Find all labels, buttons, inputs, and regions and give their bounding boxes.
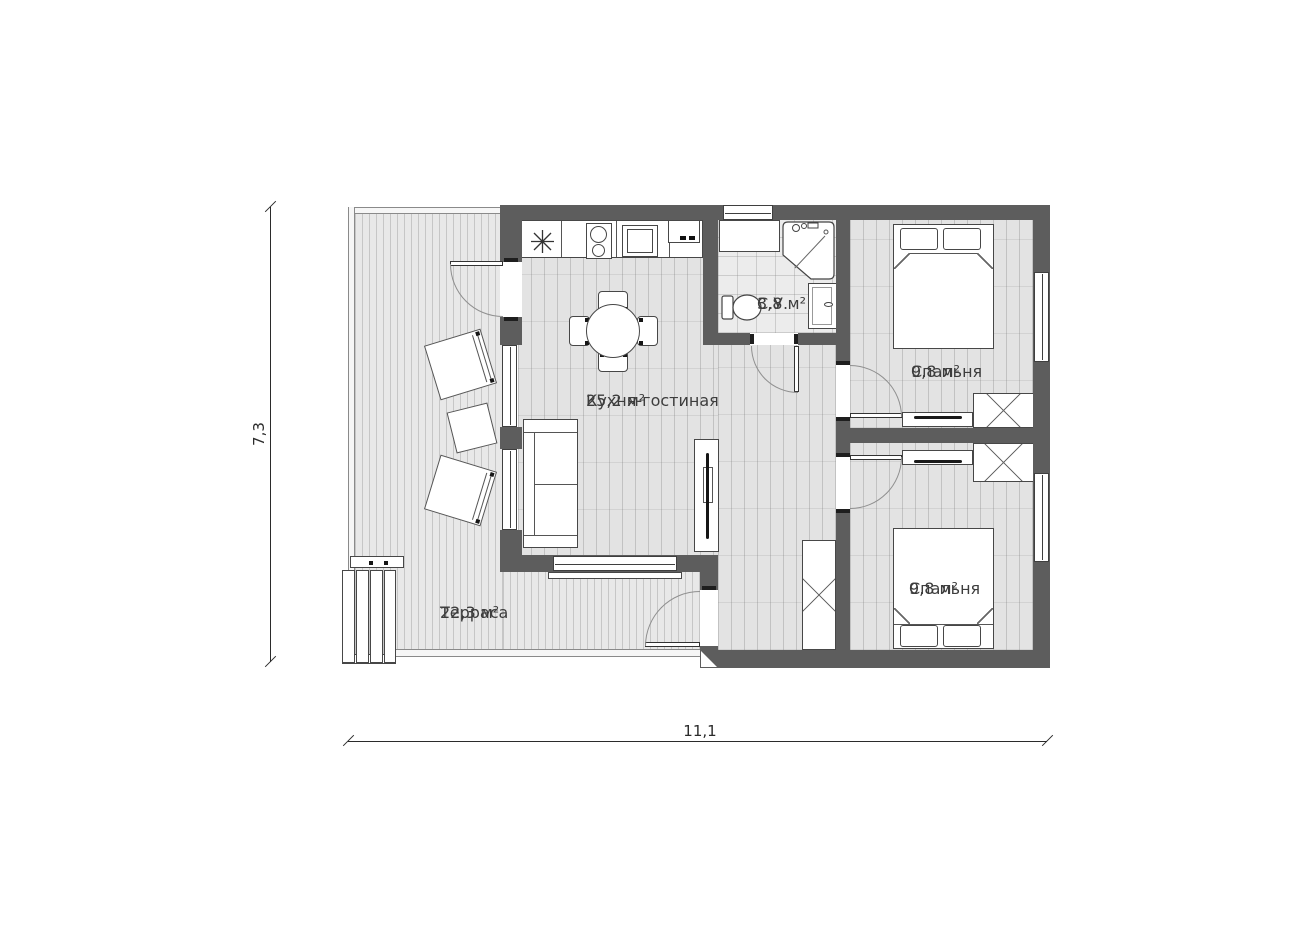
door-jamb bbox=[836, 509, 850, 513]
entrance-door-opening bbox=[700, 590, 718, 646]
room-area: 22,3 м² bbox=[440, 603, 499, 622]
living-bottom-window bbox=[553, 556, 677, 571]
step-tread bbox=[370, 570, 383, 663]
room-area: 3,8 м² bbox=[757, 294, 806, 313]
door-jamb bbox=[836, 417, 850, 421]
counter-divider bbox=[561, 221, 562, 257]
chair-corner bbox=[475, 331, 480, 336]
tv-icon bbox=[914, 460, 962, 463]
wall-pier bbox=[500, 530, 522, 572]
bedroom2-door-opening bbox=[836, 457, 850, 509]
pillow bbox=[900, 625, 938, 647]
tv-icon bbox=[706, 453, 709, 539]
door-jamb bbox=[750, 334, 754, 344]
wall-corner-notch bbox=[701, 651, 717, 667]
step-tread bbox=[384, 570, 396, 663]
dim-line-horizontal bbox=[348, 741, 1047, 742]
wall-bathroom-left bbox=[703, 220, 718, 345]
tv-stand bbox=[902, 412, 973, 427]
wardrobe bbox=[973, 443, 1034, 482]
dining-table bbox=[586, 304, 640, 358]
tv-cabinet bbox=[694, 439, 719, 552]
steps-stringer bbox=[350, 556, 404, 568]
door-jamb bbox=[504, 258, 518, 262]
tv-stand bbox=[902, 450, 973, 465]
terrace-door-opening bbox=[500, 262, 522, 317]
chair-arm bbox=[639, 318, 643, 322]
bolt-icon bbox=[384, 561, 388, 565]
sofa-armrest bbox=[524, 432, 577, 433]
blanket-fold bbox=[977, 253, 993, 269]
door-jamb bbox=[836, 361, 850, 365]
dim-line-vertical bbox=[270, 207, 271, 662]
switch-dot bbox=[680, 236, 686, 240]
door-jamb bbox=[702, 586, 716, 590]
pillow bbox=[943, 625, 981, 647]
living-glazing-b bbox=[502, 449, 517, 530]
step-tread bbox=[342, 570, 355, 663]
blanket-fold bbox=[894, 253, 910, 269]
door-jamb bbox=[504, 317, 518, 321]
wall-pier bbox=[500, 427, 522, 449]
wall-top bbox=[503, 205, 1050, 220]
living-glazing-a bbox=[502, 345, 517, 427]
dining-chair bbox=[637, 316, 658, 346]
shower-icon bbox=[781, 221, 836, 282]
bed-double bbox=[893, 224, 994, 349]
sink-icon bbox=[529, 228, 556, 255]
counter-divider bbox=[616, 221, 617, 257]
bedroom2-window bbox=[1034, 473, 1049, 562]
chair-corner bbox=[475, 519, 480, 524]
vanity-sink bbox=[808, 283, 837, 329]
bedroom1-door-opening bbox=[836, 365, 850, 417]
switch-dot bbox=[689, 236, 695, 240]
bathroom-counter bbox=[719, 220, 780, 252]
window-sill bbox=[548, 572, 682, 579]
pillow bbox=[900, 228, 938, 250]
chair-corner bbox=[490, 472, 495, 477]
stove-burner bbox=[590, 226, 607, 243]
pillow bbox=[943, 228, 981, 250]
terrace-railing-bottom bbox=[396, 649, 703, 657]
room-area: 9,8 м² bbox=[909, 579, 958, 598]
bathroom-door-opening bbox=[750, 333, 798, 345]
switch-panel bbox=[668, 220, 700, 243]
wardrobe bbox=[973, 393, 1034, 428]
faucet-icon bbox=[824, 302, 833, 307]
tv-icon bbox=[914, 416, 962, 419]
chair-arm bbox=[639, 341, 643, 345]
wall-bedroom-divider bbox=[838, 428, 1040, 443]
dim-label-height: 7,3 bbox=[250, 414, 268, 454]
bedroom1-window bbox=[1034, 272, 1049, 362]
wall-pier bbox=[500, 205, 522, 262]
hall-wardrobe bbox=[802, 540, 836, 650]
wall-bottom bbox=[700, 650, 1050, 668]
dim-label-width: 11,1 bbox=[670, 722, 730, 740]
oven-inner bbox=[627, 229, 653, 253]
sofa bbox=[523, 419, 578, 548]
door-jamb bbox=[836, 453, 850, 457]
terrace-railing-top bbox=[348, 207, 503, 214]
wall-pier bbox=[500, 317, 522, 345]
sofa-armrest bbox=[524, 535, 577, 536]
stove-burner bbox=[592, 244, 605, 257]
door-jamb bbox=[794, 334, 798, 344]
chair-corner bbox=[490, 378, 495, 383]
room-area: 25,2 м² bbox=[586, 391, 645, 410]
sofa-seat-divider bbox=[534, 484, 577, 485]
page: Кухня-гостиная 25,2 м² Терраса 22,3 м² С… bbox=[0, 0, 1316, 931]
bolt-icon bbox=[369, 561, 373, 565]
step-tread bbox=[356, 570, 369, 663]
floor-plan: Кухня-гостиная 25,2 м² Терраса 22,3 м² С… bbox=[0, 0, 1316, 931]
blanket-fold bbox=[977, 608, 993, 624]
blanket-fold bbox=[894, 608, 910, 624]
room-area: 9,8 м² bbox=[911, 362, 960, 381]
bathroom-window bbox=[723, 205, 773, 220]
